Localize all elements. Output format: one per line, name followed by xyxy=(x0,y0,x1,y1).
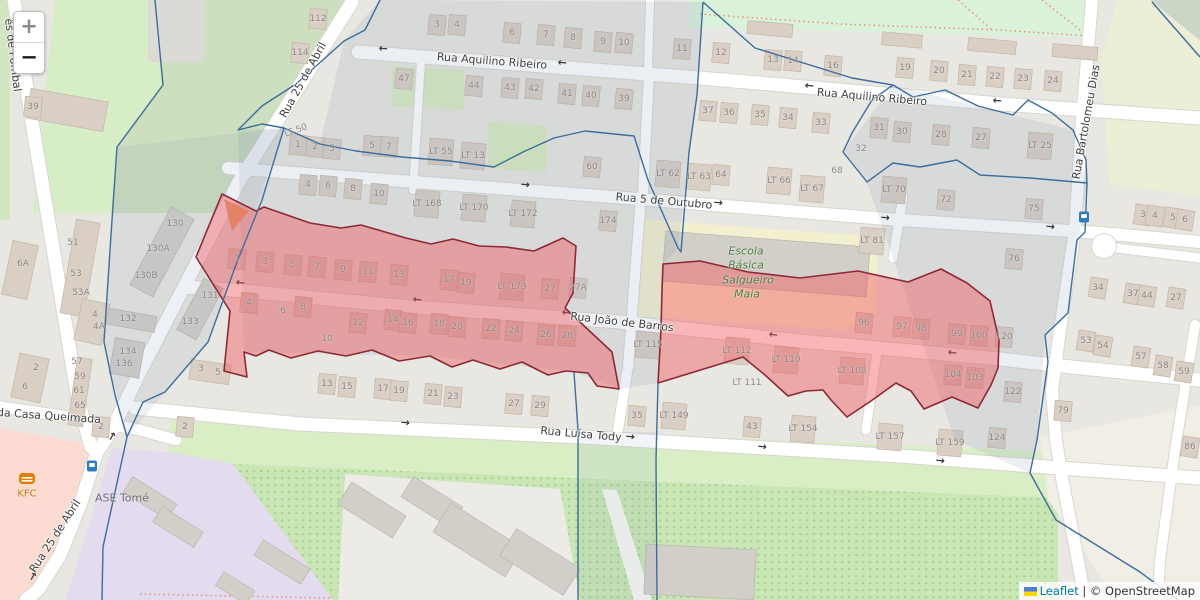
building xyxy=(784,50,803,71)
building xyxy=(1180,436,1200,458)
oneway-arrow-icon: ← xyxy=(557,56,567,70)
oneway-arrow-icon: → xyxy=(713,196,723,210)
bus-stop-icon xyxy=(89,463,95,467)
building xyxy=(877,423,903,451)
building xyxy=(790,415,816,443)
building xyxy=(1014,68,1033,89)
leaflet-link[interactable]: Leaflet xyxy=(1040,584,1079,598)
building xyxy=(176,416,195,437)
building xyxy=(986,66,1005,87)
building xyxy=(896,57,915,78)
building xyxy=(1088,277,1108,299)
building xyxy=(764,49,783,70)
building xyxy=(291,42,310,63)
building xyxy=(720,102,739,123)
building xyxy=(390,380,409,401)
building xyxy=(309,8,328,29)
oneway-arrow-icon: ← xyxy=(804,79,814,93)
oneway-arrow-icon: ← xyxy=(992,94,1002,108)
building xyxy=(958,64,977,85)
building xyxy=(444,386,463,407)
building xyxy=(531,395,550,416)
fastfood-burger-icon xyxy=(22,480,33,482)
road xyxy=(1116,248,1200,258)
building xyxy=(1093,335,1113,357)
building xyxy=(686,163,712,191)
oneway-arrow-icon: → xyxy=(400,416,410,430)
building xyxy=(424,383,443,404)
building xyxy=(779,107,798,128)
building xyxy=(1166,287,1186,309)
oneway-arrow-icon: ← xyxy=(378,42,388,56)
building xyxy=(712,164,731,185)
building xyxy=(766,167,792,195)
culdesac-road xyxy=(1092,234,1116,258)
attribution: Leaflet | © OpenStreetMap xyxy=(1019,582,1200,600)
building xyxy=(712,42,731,63)
building xyxy=(24,96,43,117)
building xyxy=(812,112,831,133)
building xyxy=(1137,285,1157,307)
building xyxy=(338,376,357,397)
building xyxy=(859,227,885,255)
zoom-out-button[interactable]: − xyxy=(14,42,44,73)
building xyxy=(1131,346,1151,368)
building xyxy=(1153,355,1173,377)
oneway-arrow-icon: → xyxy=(935,454,945,468)
zoom-control: + − xyxy=(13,11,45,74)
landuse-area xyxy=(0,0,10,220)
building xyxy=(930,60,949,81)
zoom-in-button[interactable]: + xyxy=(14,12,44,42)
oneway-arrow-icon: → xyxy=(757,440,767,454)
landuse-area xyxy=(1101,0,1200,196)
building xyxy=(1076,330,1096,352)
ukraine-flag-icon xyxy=(1024,587,1037,596)
building xyxy=(1054,400,1073,421)
oneway-arrow-icon: → xyxy=(880,211,890,225)
attribution-separator: | xyxy=(1082,584,1086,598)
oneway-arrow-icon: → xyxy=(625,430,635,444)
building xyxy=(799,175,825,203)
building xyxy=(1044,70,1063,91)
map-canvas[interactable]: ←←←←→→→→←←←←←→→→→→→ 39112114346789104744… xyxy=(0,0,1200,600)
building xyxy=(374,378,393,399)
building xyxy=(505,393,524,414)
building xyxy=(661,402,687,430)
highlight-polygon xyxy=(658,261,999,417)
building xyxy=(318,373,337,394)
building xyxy=(2,240,39,299)
building xyxy=(1174,361,1194,383)
building xyxy=(882,32,923,48)
openstreetmap-link[interactable]: © OpenStreetMap xyxy=(1090,584,1195,598)
building xyxy=(11,353,50,403)
bus-stop-icon xyxy=(1081,214,1087,218)
oneway-arrow-icon: → xyxy=(1045,220,1056,234)
building xyxy=(968,37,1017,54)
oneway-arrow-icon: → xyxy=(520,178,530,192)
building xyxy=(1175,209,1195,231)
building xyxy=(699,100,718,121)
building xyxy=(1145,205,1165,227)
map-base-layer: ←←←←→→→→←←←←←→→→→→→ xyxy=(0,0,1200,600)
fastfood-burger-icon xyxy=(22,477,33,479)
building xyxy=(743,416,762,437)
building xyxy=(751,104,770,125)
building xyxy=(644,544,756,600)
boundary-fill xyxy=(578,432,657,600)
building xyxy=(628,405,647,426)
